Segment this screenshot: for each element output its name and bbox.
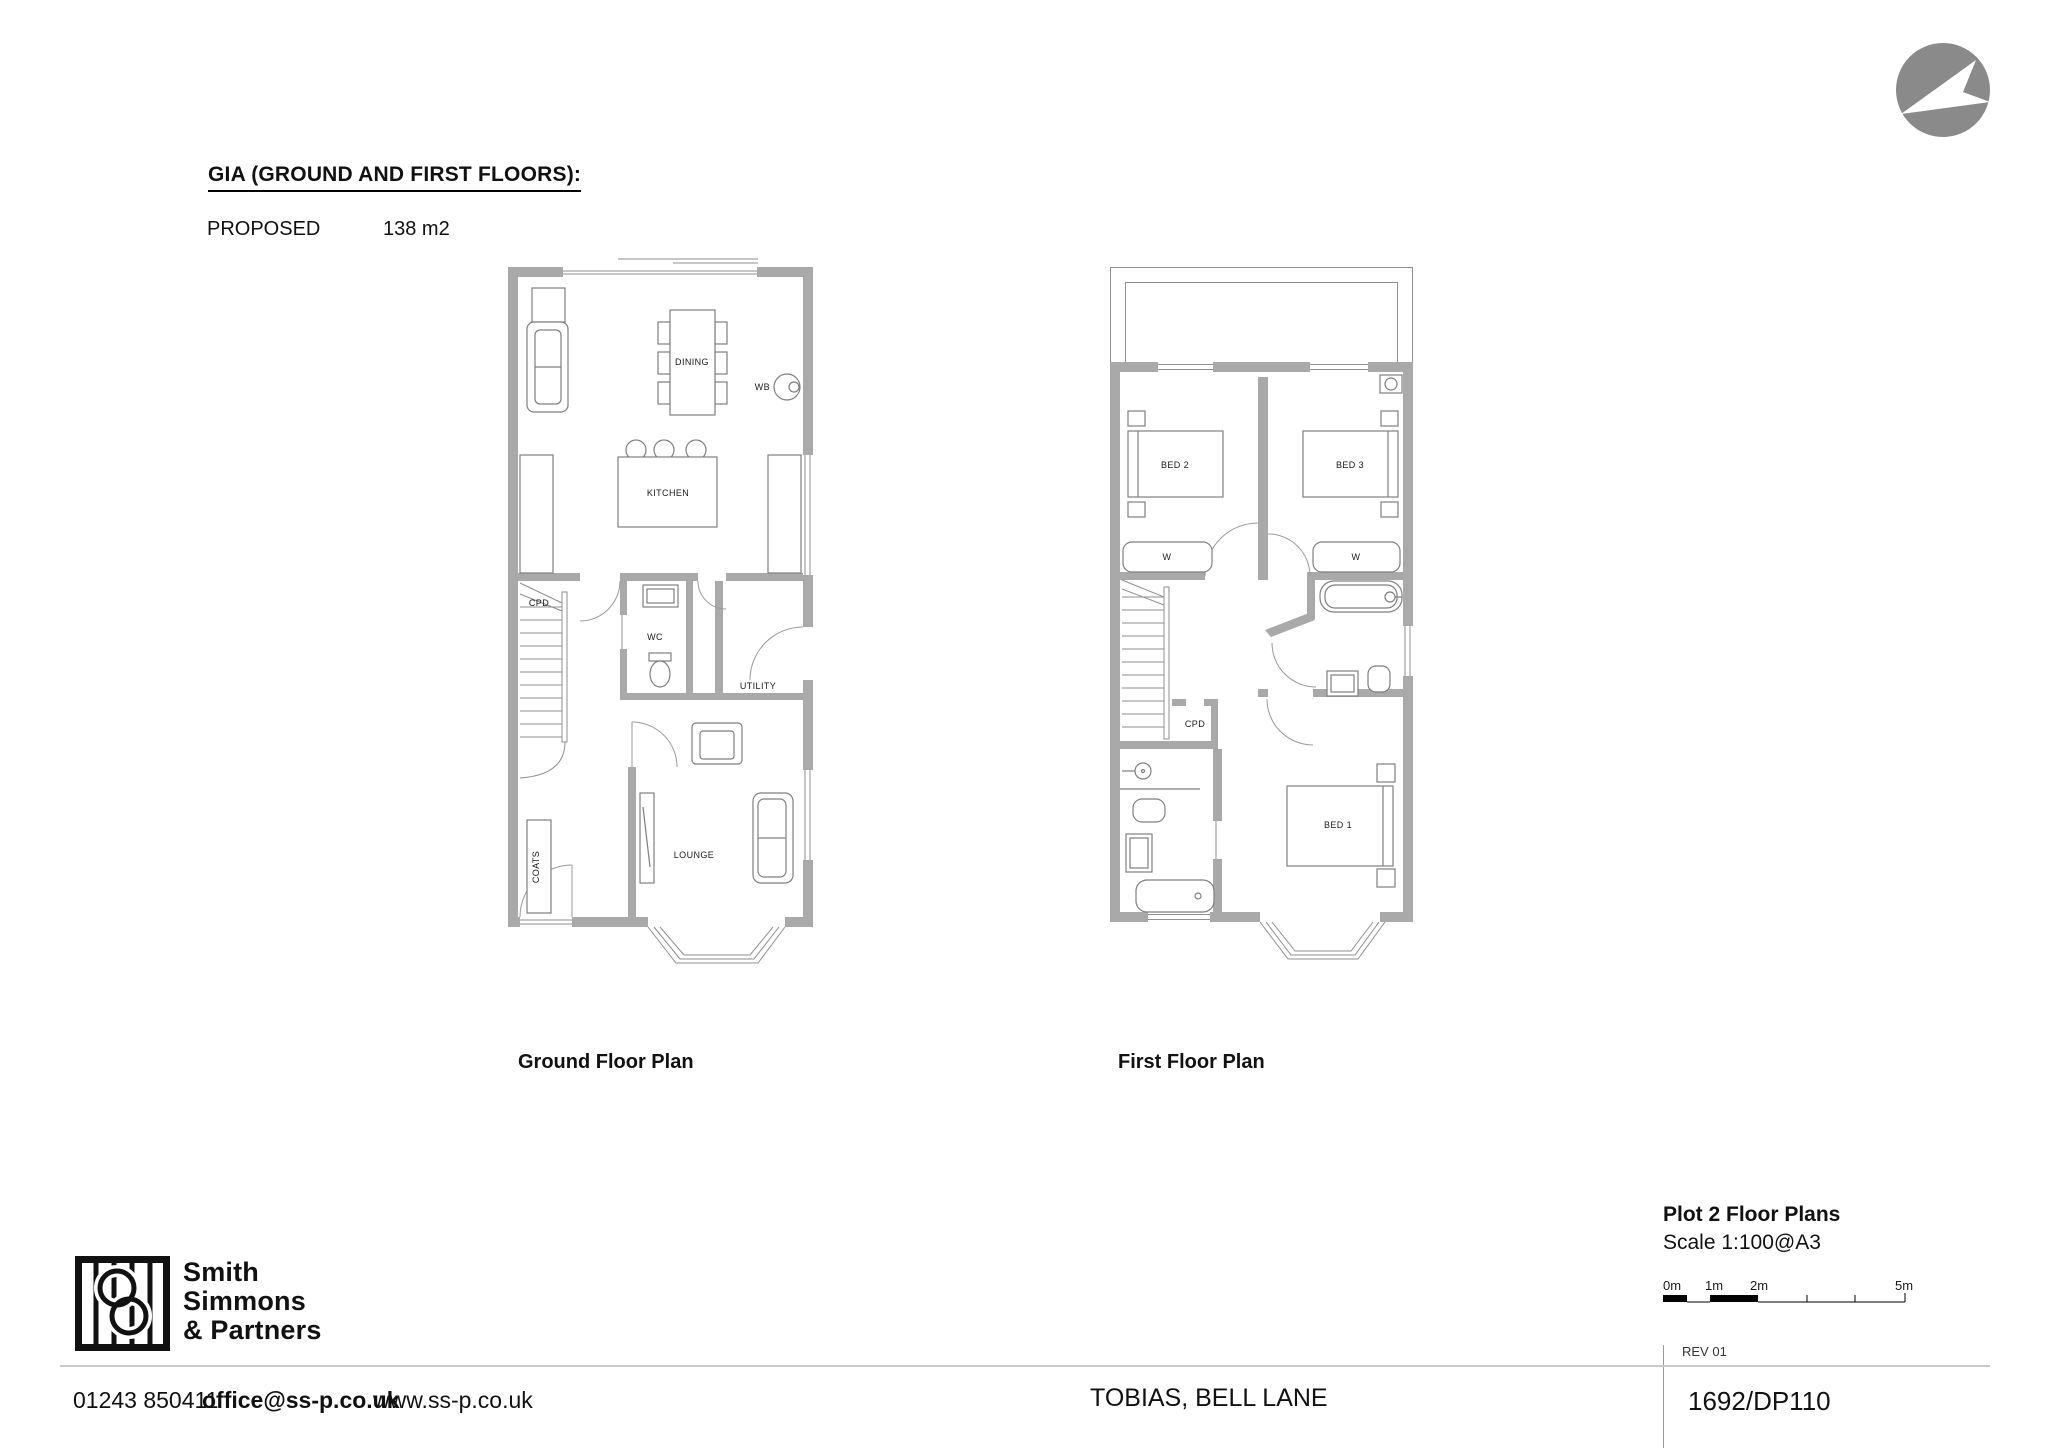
ground-stairs — [520, 583, 567, 778]
first-stairs — [1122, 580, 1169, 739]
coats-label: COATS — [531, 851, 541, 883]
gia-heading: GIA (GROUND AND FIRST FLOORS): — [208, 163, 581, 192]
titleblock-divider-vertical — [1663, 1345, 1664, 1448]
wardrobe-right-label: W — [1352, 552, 1361, 562]
project-name: TOBIAS, BELL LANE — [1090, 1384, 1328, 1413]
wb-label: WB — [755, 382, 770, 392]
scale-0m: 0m — [1663, 1278, 1681, 1293]
dining-label: DINING — [675, 357, 709, 367]
phone-number: 01243 850411 — [73, 1387, 218, 1414]
cpd-label: CPD — [529, 598, 549, 608]
drawing-scale: Scale 1:100@A3 — [1663, 1231, 1821, 1255]
first-floor-caption: First Floor Plan — [1118, 1051, 1265, 1074]
bed2-label: BED 2 — [1161, 460, 1189, 470]
first-bay-window — [1260, 922, 1385, 959]
company-name: Smith Simmons & Partners — [183, 1258, 322, 1345]
wardrobe-left-label: W — [1163, 552, 1172, 562]
email-address[interactable]: office@ss-p.co.uk — [202, 1387, 400, 1414]
roof-outline — [1111, 268, 1413, 363]
wc-label: WC — [647, 632, 663, 642]
cpd-first-label: CPD — [1185, 719, 1205, 729]
revision-label: REV 01 — [1682, 1344, 1727, 1359]
company-line1: Smith — [183, 1258, 322, 1287]
drawing-title: Plot 2 Floor Plans — [1663, 1203, 1840, 1227]
company-line2: Simmons — [183, 1287, 322, 1316]
scale-bar: 0m 1m 2m 5m — [1663, 1278, 1923, 1308]
scale-1m: 1m — [1705, 1278, 1723, 1293]
first-floor-plan: BED 2 BED 3 W W CPD BED 1 — [1110, 247, 1413, 972]
bed3-label: BED 3 — [1336, 460, 1364, 470]
company-line3: & Partners — [183, 1316, 322, 1345]
scale-2m: 2m — [1750, 1278, 1768, 1293]
proposed-label: PROPOSED — [207, 218, 320, 241]
proposed-area-value: 138 m2 — [383, 218, 450, 241]
smith-simmons-logo-icon — [75, 1256, 170, 1351]
drawing-number: 1692/DP110 — [1688, 1386, 1831, 1417]
ground-floor-plan: DINING KITCHEN WB CPD WC UTILITY LOUNGE … — [508, 247, 813, 972]
ground-bay-window — [648, 927, 785, 963]
scale-5m: 5m — [1895, 1278, 1913, 1293]
ground-floor-caption: Ground Floor Plan — [518, 1051, 694, 1074]
website-url[interactable]: www.ss-p.co.uk — [373, 1387, 533, 1414]
scale-bar-graphic — [1663, 1293, 1905, 1302]
footer-divider-horizontal — [60, 1365, 1990, 1367]
drawing-sheet: { "header": { "title": "GIA (GROUND AND … — [0, 0, 2048, 1448]
lounge-label: LOUNGE — [674, 850, 714, 860]
utility-label: UTILITY — [740, 681, 776, 691]
kitchen-label: KITCHEN — [647, 488, 689, 498]
bed1-label: BED 1 — [1324, 820, 1352, 830]
north-arrow-logo — [1893, 40, 1993, 140]
